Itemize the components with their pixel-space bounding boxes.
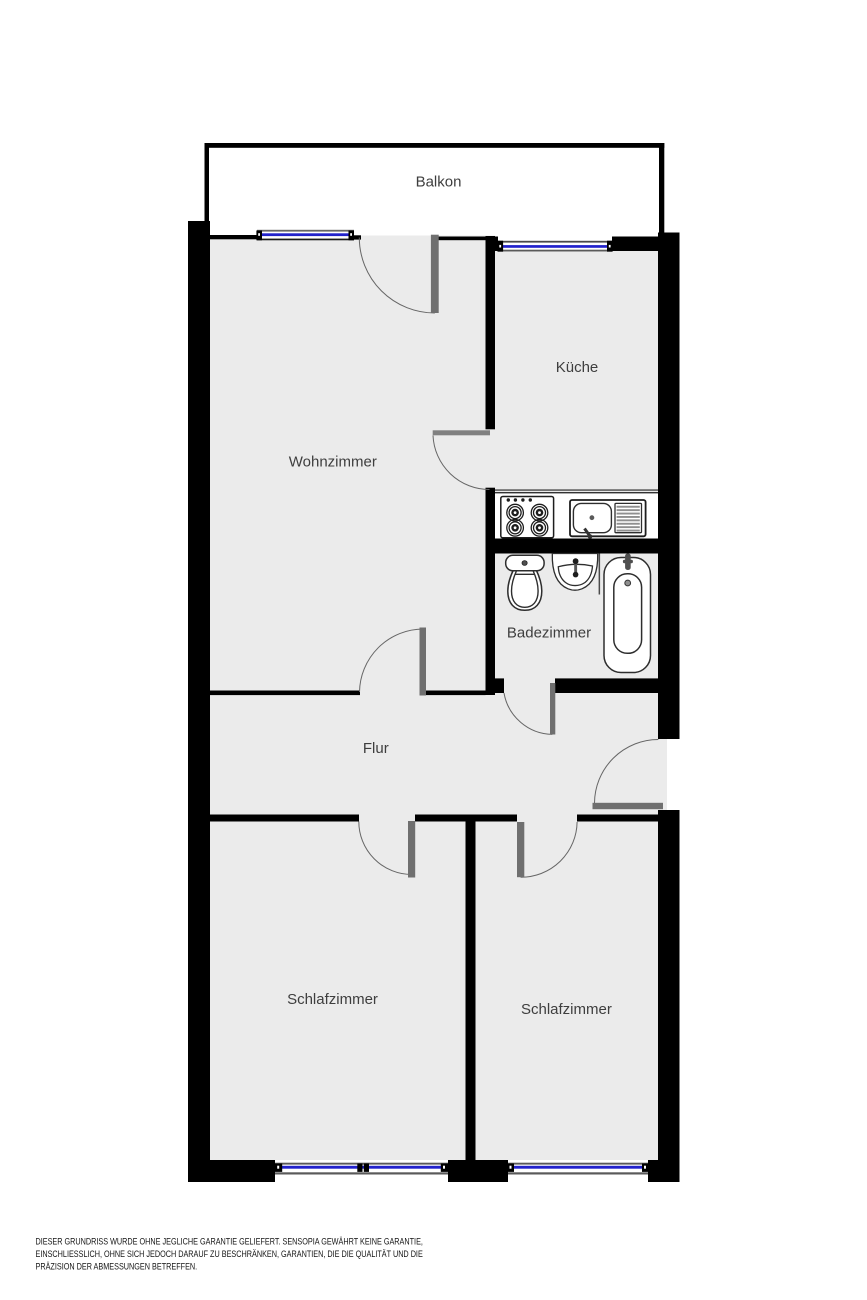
svg-text:Balkon: Balkon: [416, 174, 462, 191]
svg-text:Wohnzimmer: Wohnzimmer: [289, 454, 377, 471]
svg-text:Schlafzimmer: Schlafzimmer: [521, 1001, 612, 1018]
svg-text:EINSCHLIESSLICH, OHNE SICH JED: EINSCHLIESSLICH, OHNE SICH JEDOCH DARAUF…: [36, 1248, 424, 1259]
svg-text:Schlafzimmer: Schlafzimmer: [287, 991, 378, 1008]
svg-text:Flur: Flur: [363, 740, 389, 757]
svg-text:Badezimmer: Badezimmer: [507, 625, 591, 642]
svg-text:PRÄZISION DER ABMESSUNGEN BETR: PRÄZISION DER ABMESSUNGEN BETREFFEN.: [36, 1260, 198, 1271]
svg-text:Küche: Küche: [556, 359, 599, 376]
svg-text:DIESER GRUNDRISS WURDE OHNE JE: DIESER GRUNDRISS WURDE OHNE JEGLICHE GAR…: [36, 1235, 423, 1246]
